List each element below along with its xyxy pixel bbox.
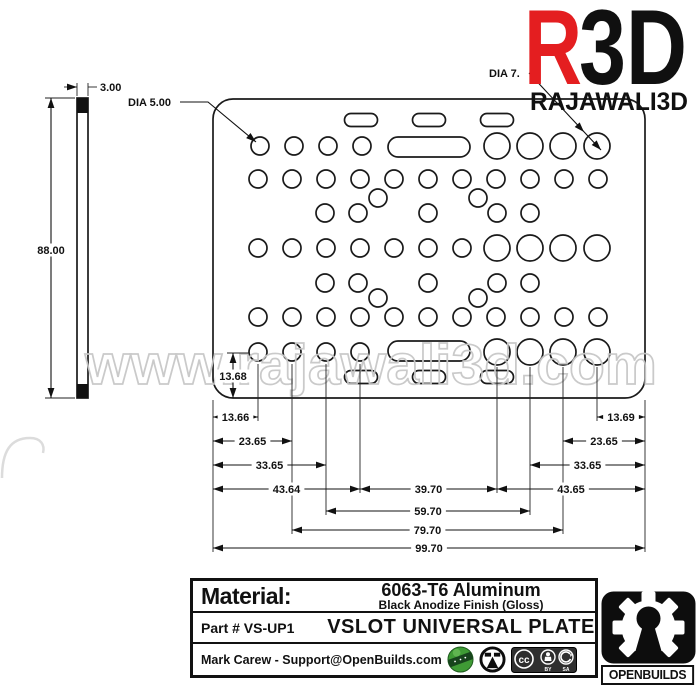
plate-hole-small — [317, 239, 335, 257]
dim-label: 33.65 — [256, 460, 284, 472]
plate-hole-small — [317, 170, 335, 188]
plate-hole-small — [249, 170, 267, 188]
dim-arrow — [635, 545, 645, 552]
plate-hole-small — [353, 137, 371, 155]
plate-hole-small — [419, 239, 437, 257]
plate-hole-small — [351, 308, 369, 326]
plate-hole-large — [517, 235, 543, 261]
thickness-label: 3.00 — [100, 82, 121, 94]
rajawali3d-logo: 3D R RAJAWALI3D — [524, 0, 688, 116]
title-block: Material: 6063-T6 Aluminum Black Anodize… — [190, 578, 598, 678]
dim-label: 39.70 — [415, 484, 443, 496]
part-title: VSLOT UNIVERSAL PLATE — [327, 616, 595, 639]
plate-slot — [413, 114, 446, 127]
plate-slot — [481, 114, 514, 127]
plate-hole-small — [487, 308, 505, 326]
plate-hole-large — [484, 133, 510, 159]
openbuilds-gear-icon — [601, 591, 696, 664]
plate-hole-small — [249, 239, 267, 257]
dim-arrow — [48, 388, 55, 398]
plate-hole-small — [589, 308, 607, 326]
plate-hole-small — [385, 308, 403, 326]
meter-circle-logo — [479, 646, 506, 673]
plate-hole-small — [351, 170, 369, 188]
plate-slot — [345, 114, 378, 127]
plate-hole-small — [369, 189, 387, 207]
plate-hole-large — [484, 235, 510, 261]
dia-5-label: DIA 5.00 — [128, 97, 171, 109]
plate-hole-small — [285, 137, 303, 155]
plate-hole-small — [488, 274, 506, 292]
material-finish: Black Anodize Finish (Gloss) — [327, 599, 595, 611]
plate-hole-large — [550, 235, 576, 261]
plate-hole-small — [316, 274, 334, 292]
plate-hole-small — [283, 308, 301, 326]
plate-hole-large — [584, 235, 610, 261]
openbuilds-logo: OPENBUILDS — [601, 591, 696, 685]
plate-hole-small — [385, 239, 403, 257]
cc-sa-text: SA — [563, 667, 570, 673]
creative-commons-badge: cc BY SA — [511, 647, 577, 673]
plate-hole-large — [550, 133, 576, 159]
dim-label: 88.00 — [37, 245, 65, 257]
plate-hole-small — [555, 170, 573, 188]
title-block-part-row: Part # VS-UP1 VSLOT UNIVERSAL PLATE — [193, 611, 595, 642]
material-value: 6063-T6 Aluminum — [327, 581, 595, 599]
title-block-material-row: Material: 6063-T6 Aluminum Black Anodize… — [193, 581, 595, 611]
plate-hole-small — [283, 239, 301, 257]
plate-hole-small — [469, 189, 487, 207]
plate-hole-small — [319, 137, 337, 155]
plate-hole-small — [351, 239, 369, 257]
dim-label: 23.65 — [239, 436, 267, 448]
cc-by-text: BY — [545, 667, 553, 673]
dim-label: 99.70 — [415, 543, 443, 555]
plate-hole-small — [349, 274, 367, 292]
title-block-credit-row: Mark Carew - Support@OpenBuilds.com — [193, 642, 595, 675]
plate-hole-small — [453, 308, 471, 326]
plate-hole-small — [488, 204, 506, 222]
plate-hole-small — [419, 274, 437, 292]
dim-arrow — [316, 462, 326, 469]
plate-hole-small — [589, 170, 607, 188]
dim-arrow — [48, 98, 55, 108]
plate-hole-small — [419, 204, 437, 222]
credit-text: Mark Carew - Support@OpenBuilds.com — [193, 653, 442, 667]
plate-hole-small — [487, 170, 505, 188]
license-logos: cc BY SA — [447, 646, 595, 673]
dim-arrow — [563, 438, 573, 445]
dia-7-label: DIA 7. — [489, 68, 520, 80]
dim-arrow — [635, 438, 645, 445]
side-view-top-band — [77, 98, 88, 113]
dim-arrow — [292, 527, 302, 534]
plate-hole-small — [419, 308, 437, 326]
dim-arrow — [213, 438, 223, 445]
dim-arrow — [520, 508, 530, 515]
dim-label: 79.70 — [414, 525, 442, 537]
dim-label: 33.65 — [574, 460, 602, 472]
dim-arrow — [497, 486, 507, 493]
dim-label: 59.70 — [414, 506, 442, 518]
plate-long-slot — [388, 137, 470, 157]
plate-hole-small — [521, 274, 539, 292]
dim-arrow — [67, 84, 77, 91]
watermark-text: www.rajawali3d.com — [84, 333, 657, 397]
plate-hole-small — [349, 204, 367, 222]
open-source-green-logo — [447, 646, 474, 673]
dim-arrow — [282, 438, 292, 445]
openbuilds-label: OPENBUILDS — [601, 665, 694, 685]
dim-arrow — [635, 486, 645, 493]
dim-label: 23.65 — [590, 436, 618, 448]
plate-hole-small — [316, 204, 334, 222]
corner-smudge — [2, 438, 43, 478]
dim-arrow — [213, 462, 223, 469]
dim-arrow — [360, 486, 370, 493]
dim-label: 13.68 — [219, 371, 247, 383]
dim-arrow — [213, 486, 223, 493]
plate-hole-large — [517, 133, 543, 159]
cc-text: cc — [518, 655, 530, 666]
plate-hole-small — [419, 170, 437, 188]
plate-hole-small — [249, 308, 267, 326]
plate-hole-small — [385, 170, 403, 188]
plate-hole-small — [369, 289, 387, 307]
dim-arrow — [326, 508, 336, 515]
dim-arrow — [213, 545, 223, 552]
plate-hole-small — [453, 170, 471, 188]
dim-arrow — [350, 486, 360, 493]
plate-hole-small — [317, 308, 335, 326]
plate-hole-small — [555, 308, 573, 326]
dim-arrow — [530, 462, 540, 469]
dim-arrow — [553, 527, 563, 534]
dim-arrow — [487, 486, 497, 493]
dim-label: 43.65 — [557, 484, 585, 496]
plate-hole-small — [453, 239, 471, 257]
plate-hole-small — [521, 204, 539, 222]
dim-label: 13.69 — [607, 412, 635, 424]
drawing-sheet: www.rajawali3d.com 13.6623.6533.6543.643… — [0, 0, 700, 700]
material-label: Material: — [193, 583, 327, 610]
plate-hole-small — [469, 289, 487, 307]
plate-hole-small — [521, 170, 539, 188]
dim-arrow — [635, 462, 645, 469]
dim-label: 43.64 — [273, 484, 301, 496]
logo-subtitle-text: RAJAWALI3D — [530, 88, 688, 116]
plate-hole-small — [521, 308, 539, 326]
plate-hole-small — [283, 170, 301, 188]
part-number: Part # VS-UP1 — [193, 620, 327, 636]
dim-label: 13.66 — [222, 412, 250, 424]
